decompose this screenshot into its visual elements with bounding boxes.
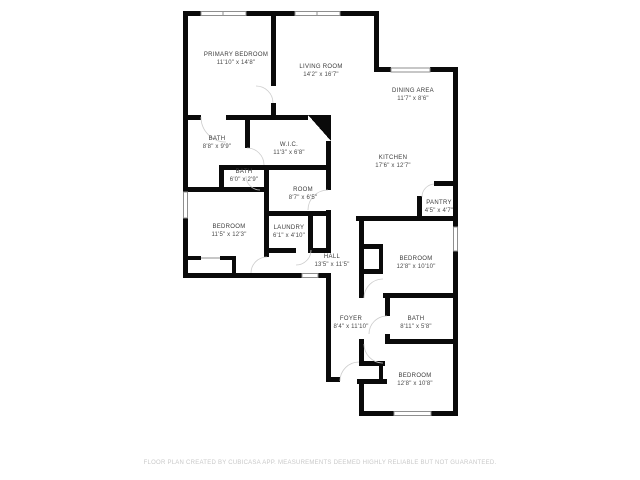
room-label-bedroom-left: BEDROOM 11'5" x 12'3" xyxy=(211,224,246,240)
room-dims: 11'3" x 6'8" xyxy=(273,150,305,158)
room-name: LIVING ROOM xyxy=(299,64,342,72)
room-dims: 11'7" x 8'6" xyxy=(392,96,434,104)
room-name: PANTRY xyxy=(425,200,453,208)
room-dims: 12'8" x 10'10" xyxy=(396,264,435,272)
room-name: LAUNDRY xyxy=(273,225,305,233)
room-label-room: ROOM 8'7" x 6'5" xyxy=(289,187,317,203)
room-name: HALL xyxy=(314,254,349,262)
room-dims: 12'8" x 10'8" xyxy=(397,381,433,389)
room-name: BATH xyxy=(400,316,432,324)
room-dims: 8'8" x 9'9" xyxy=(203,144,231,152)
room-label-bedroom-middle: BEDROOM 12'8" x 10'10" xyxy=(396,256,435,272)
room-name: BEDROOM xyxy=(211,224,246,232)
room-label-primary-bedroom: PRIMARY BEDROOM 11'10" x 14'8" xyxy=(204,52,268,68)
room-label-bath-main: BATH 8'8" x 9'9" xyxy=(203,136,231,152)
room-name: W.I.C. xyxy=(273,142,305,150)
room-label-kitchen: KITCHEN 17'6" x 12'7" xyxy=(375,155,411,171)
room-dims: 14'2" x 16'7" xyxy=(299,72,342,80)
room-name: PRIMARY BEDROOM xyxy=(204,52,268,60)
room-name: ROOM xyxy=(289,187,317,195)
room-name: DINING AREA xyxy=(392,88,434,96)
room-name: KITCHEN xyxy=(375,155,411,163)
room-label-foyer: FOYER 8'4" x 11'10" xyxy=(333,316,368,332)
room-name: BEDROOM xyxy=(396,256,435,264)
room-label-bedroom-bottom: BEDROOM 12'8" x 10'8" xyxy=(397,373,433,389)
floor-plan-page: PRIMARY BEDROOM 11'10" x 14'8" LIVING RO… xyxy=(0,0,640,480)
room-name: FOYER xyxy=(333,316,368,324)
room-name: BATH xyxy=(203,136,231,144)
room-dims: 8'11" x 5'8" xyxy=(400,324,432,332)
room-label-bath-middle: BATH 8'11" x 5'8" xyxy=(400,316,432,332)
room-label-laundry: LAUNDRY 6'1" x 4'10" xyxy=(273,225,305,241)
room-dims: 13'5" x 11'5" xyxy=(314,262,349,270)
room-label-living-room: LIVING ROOM 14'2" x 16'7" xyxy=(299,64,342,80)
chamfer-corner xyxy=(308,115,331,141)
room-name: BATH xyxy=(230,169,258,177)
room-label-dining-area: DINING AREA 11'7" x 8'6" xyxy=(392,88,434,104)
room-dims: 8'4" x 11'10" xyxy=(333,324,368,332)
room-name: BEDROOM xyxy=(397,373,433,381)
room-dims: 8'7" x 6'5" xyxy=(289,195,317,203)
room-dims: 11'5" x 12'3" xyxy=(211,232,246,240)
room-dims: 4'5" x 4'7" xyxy=(425,208,453,216)
room-label-bath-small: BATH 6'0" x 2'9" xyxy=(230,169,258,185)
room-dims: 6'1" x 4'10" xyxy=(273,233,305,241)
room-dims: 6'0" x 2'9" xyxy=(230,177,258,185)
room-label-pantry: PANTRY 4'5" x 4'7" xyxy=(425,200,453,216)
room-label-walk-in-closet: W.I.C. 11'3" x 6'8" xyxy=(273,142,305,158)
room-dims: 17'6" x 12'7" xyxy=(375,163,411,171)
footer-disclaimer: FLOOR PLAN CREATED BY CUBICASA APP. MEAS… xyxy=(144,460,497,466)
room-dims: 11'10" x 14'8" xyxy=(204,60,268,68)
room-label-hall: HALL 13'5" x 11'5" xyxy=(314,254,349,270)
